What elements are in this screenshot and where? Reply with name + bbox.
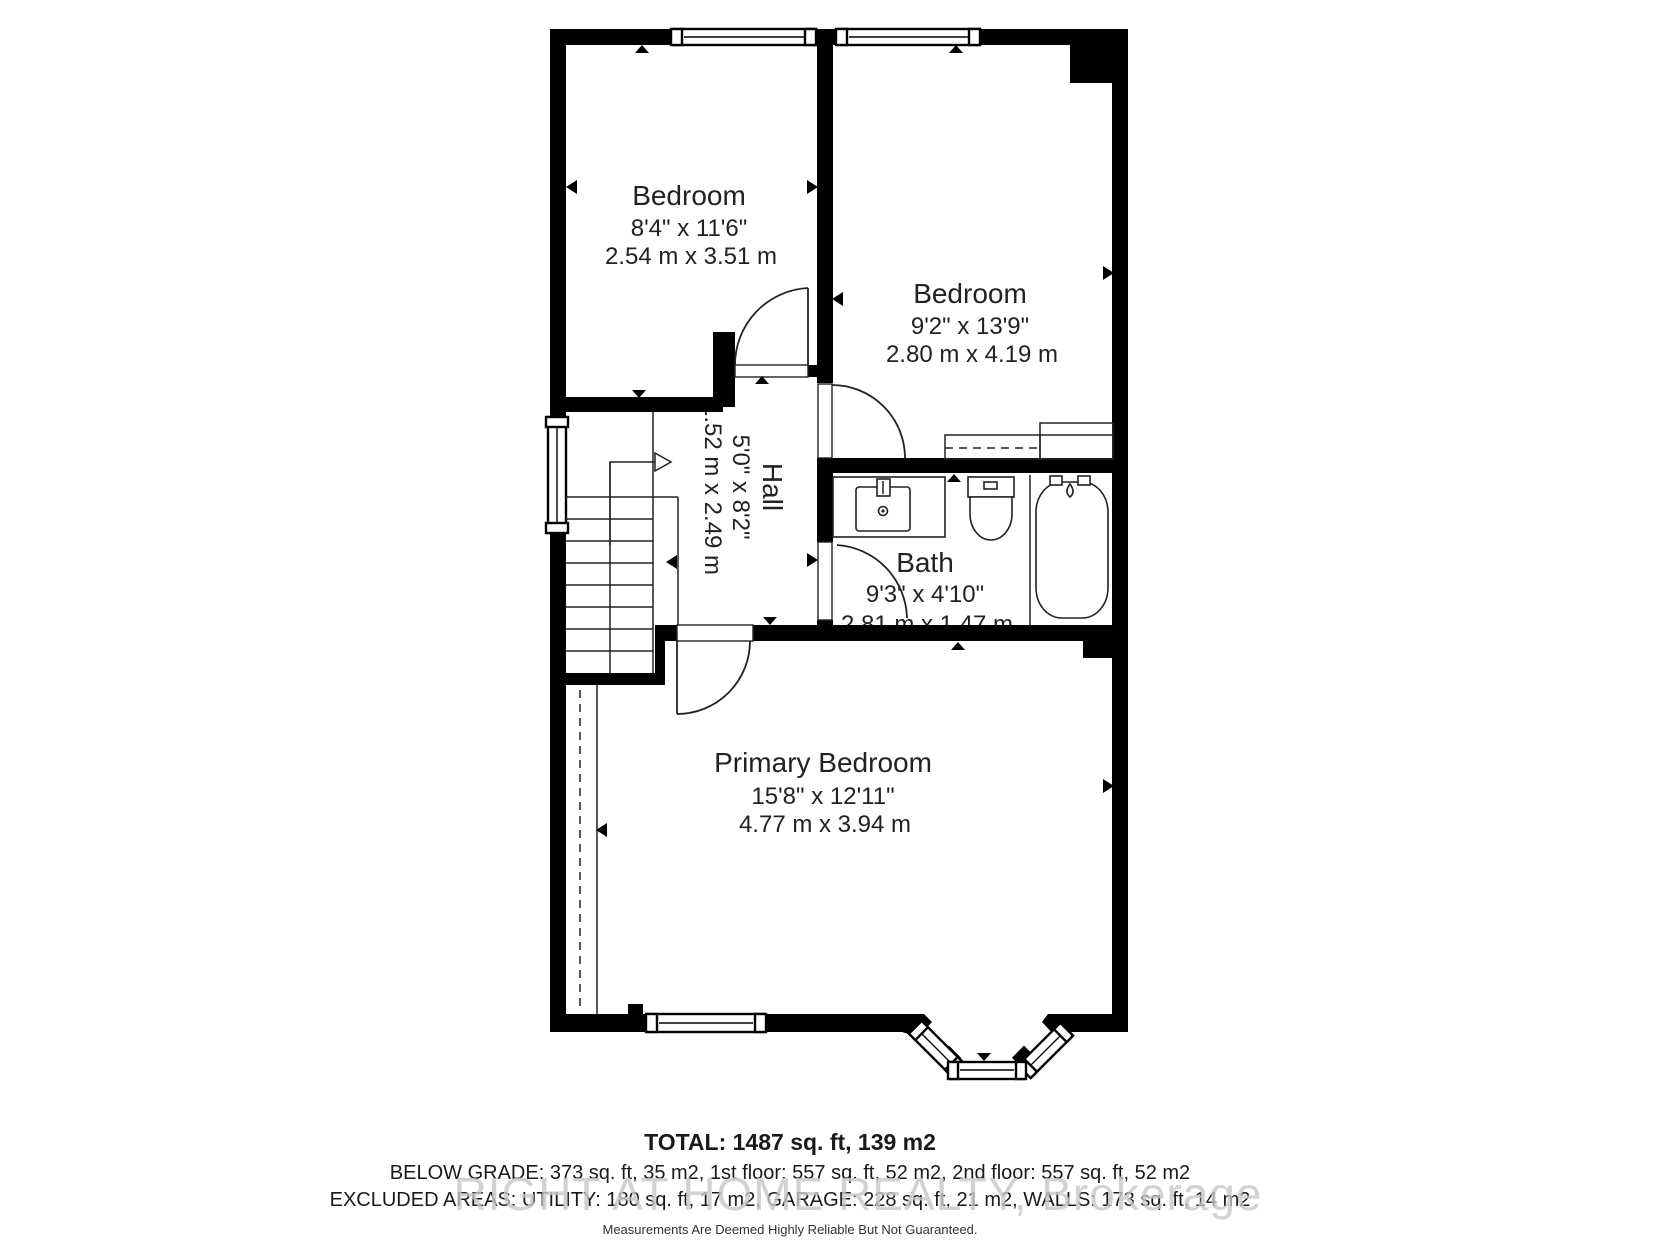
marker-down xyxy=(632,390,646,398)
wall-bedroom1-bottom xyxy=(550,397,723,412)
wall-notch-bath-corner xyxy=(1083,625,1117,658)
stairs-up-arrow xyxy=(610,453,671,545)
wall-stairs-hall-connector xyxy=(655,625,665,685)
room-label-bath: Bath 9'3" x 4'10" 2.81 m x 1.47 m xyxy=(841,547,1013,638)
wall-hall-bath-upper xyxy=(817,458,833,542)
brokerage-watermark: RIGHT AT HOME REALTY, Brokerage xyxy=(453,1168,1262,1220)
bay-window xyxy=(909,1021,1073,1079)
wall-notch-top-right xyxy=(1070,45,1113,83)
marker-down xyxy=(977,1053,991,1061)
room-label-hall: Hall 5'0" x 8'2" 1.52 m x 2.49 m xyxy=(699,403,788,575)
wall-bedroom1-doorjamb-left xyxy=(723,365,735,377)
marker-left xyxy=(566,180,577,194)
marker-up xyxy=(951,642,965,650)
wall-bedroom2-bottom xyxy=(833,458,1128,473)
window-primary-bottom xyxy=(646,1014,766,1032)
window-stairs-left xyxy=(546,417,568,533)
closet-primary-bedroom xyxy=(580,685,597,1014)
marker-right xyxy=(807,180,818,194)
window-bedroom1-top xyxy=(671,29,816,45)
toilet xyxy=(968,477,1014,540)
sink xyxy=(833,477,945,537)
marker-right xyxy=(807,553,818,567)
room-label-primary-bedroom: Primary Bedroom 15'8" x 12'11" 4.77 m x … xyxy=(714,747,936,838)
footer: TOTAL: 1487 sq. ft, 139 m2 BELOW GRADE: … xyxy=(330,1129,1263,1237)
marker-up xyxy=(635,45,649,53)
wall-stairs-bottom xyxy=(550,673,663,685)
wall-bottom-right xyxy=(1068,1014,1128,1032)
door-bedroom2 xyxy=(818,384,905,458)
wall-right xyxy=(1112,29,1128,1032)
floorplan-page: Bedroom 8'4" x 11'6" 2.54 m x 3.51 m Bed… xyxy=(0,0,1680,1260)
closet-bedroom2 xyxy=(945,423,1113,459)
door-primary-bedroom xyxy=(677,625,753,714)
marker-left xyxy=(832,292,843,306)
room-label-bedroom-1: Bedroom 8'4" x 11'6" 2.54 m x 3.51 m xyxy=(605,180,777,270)
marker-down xyxy=(763,617,777,625)
marker-up xyxy=(947,474,961,482)
wall-bedroom-divider xyxy=(817,45,833,383)
bay-window-bottom xyxy=(948,1062,1026,1079)
window-bedroom2-top xyxy=(836,29,980,45)
wall-bedroom1-doorjamb-right xyxy=(808,365,833,377)
wall-hall-bath-bottom xyxy=(753,625,1083,641)
room-label-bedroom-2: Bedroom 9'2" x 13'9" 2.80 m x 4.19 m xyxy=(886,278,1058,368)
marker-up xyxy=(949,45,963,53)
marker-left xyxy=(666,555,677,569)
floorplan-svg: Bedroom 8'4" x 11'6" 2.54 m x 3.51 m Bed… xyxy=(0,0,1680,1260)
door-bedroom1 xyxy=(735,288,808,377)
wall-closet-stub xyxy=(628,1004,643,1014)
bathtub xyxy=(1030,475,1108,625)
total-area-text: TOTAL: 1487 sq. ft, 139 m2 xyxy=(644,1129,936,1155)
disclaimer-text: Measurements Are Deemed Highly Reliable … xyxy=(602,1222,977,1237)
